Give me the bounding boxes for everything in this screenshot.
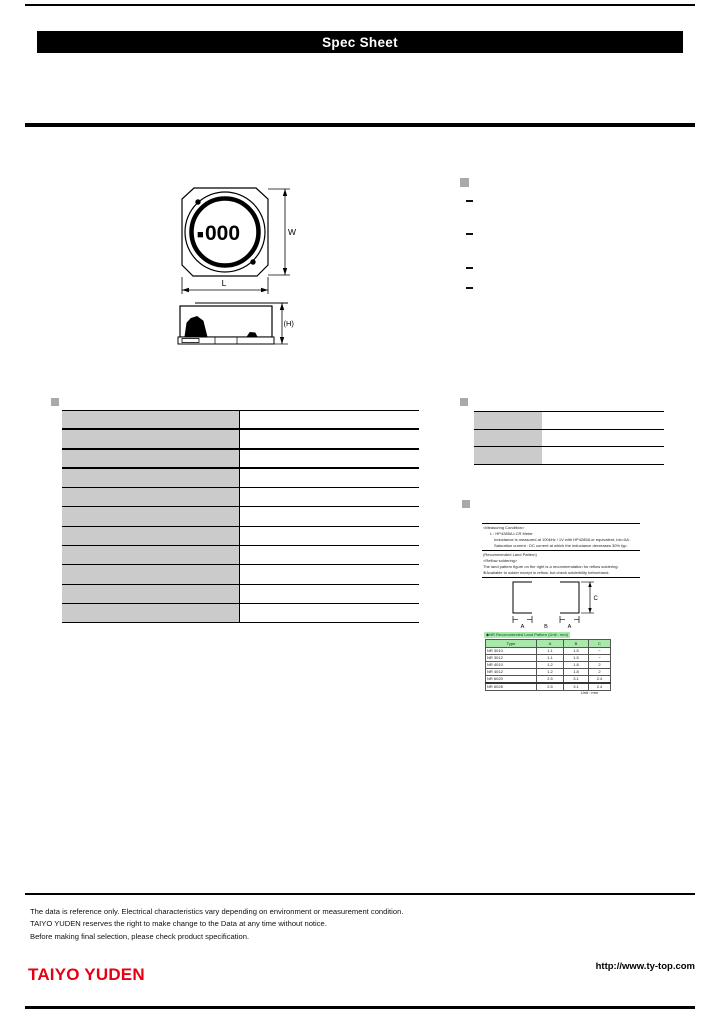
dim-c-label: C xyxy=(594,596,599,602)
spec-sheet-page: Spec Sheet ■ 000 W L xyxy=(0,0,720,1012)
table-row: NR 40101.21.82 xyxy=(486,662,611,669)
page-title: Spec Sheet xyxy=(322,35,398,50)
table-row: NR 40121.21.82 xyxy=(486,669,611,676)
feature-dash-1 xyxy=(466,200,473,202)
table-row xyxy=(62,604,419,623)
dim-a-left-label: A xyxy=(521,624,525,630)
notes-section-bullet xyxy=(462,500,470,508)
bottom-rule xyxy=(25,1006,695,1009)
table-row xyxy=(62,469,419,488)
disclaimer-line: TAIYO YUDEN reserves the right to make c… xyxy=(30,918,403,930)
notes-box: <Measuring Condition> L : HP4285A LCR Me… xyxy=(482,523,640,578)
table-row xyxy=(62,507,419,526)
dim-a-right-label: A xyxy=(568,624,572,630)
table-row: NR 60202.53.12.4 xyxy=(486,676,611,684)
spec-table xyxy=(62,410,419,623)
dim-b-label: B xyxy=(544,624,548,630)
title-bar: Spec Sheet xyxy=(37,31,683,53)
feature-dash-2 xyxy=(466,233,473,235)
table-header-row: Type A B C xyxy=(486,640,611,648)
table-row xyxy=(62,411,419,430)
height-dimension-label: (H) xyxy=(284,319,295,328)
marking-digits: 000 xyxy=(205,222,240,245)
table-row xyxy=(62,546,419,565)
table-row: NR 30121.11.5− xyxy=(486,655,611,662)
table-row xyxy=(474,447,664,465)
taiyo-yuden-logo: TAIYO YUDEN xyxy=(28,965,145,985)
spec-table-section-bullet xyxy=(51,398,59,406)
unit-note: Unit : mm xyxy=(485,690,598,695)
table-row: NR 30101.11.5− xyxy=(486,648,611,655)
top-rule xyxy=(25,4,695,6)
disclaimer-line: The data is reference only. Electrical c… xyxy=(30,906,403,918)
land-pattern-figure-icon: C A B A xyxy=(497,578,615,636)
table-row xyxy=(62,565,419,584)
table-row xyxy=(62,488,419,507)
table-row xyxy=(62,527,419,546)
company-url-link[interactable]: http://www.ty-top.com xyxy=(596,961,695,972)
table-row xyxy=(62,585,419,604)
info-table xyxy=(474,411,664,465)
header-divider-rule xyxy=(25,123,695,127)
footer-rule xyxy=(25,893,695,895)
features-section-bullet xyxy=(460,178,469,187)
soldering-note: (Recommended Land Pattern) <Reflow solde… xyxy=(482,551,640,578)
info-table-section-bullet xyxy=(460,398,468,406)
land-pattern-table: Type A B C NR 30101.11.5− NR 30121.11.5−… xyxy=(485,639,611,691)
disclaimer: The data is reference only. Electrical c… xyxy=(30,906,403,943)
length-dimension-label: L xyxy=(222,278,227,288)
feature-dash-4 xyxy=(466,287,473,289)
disclaimer-line: Before making final selection, please ch… xyxy=(30,931,403,943)
table-row xyxy=(474,430,664,448)
land-pattern-caption: ◆NR Recommended Land Pattern (Unit : mm) xyxy=(484,632,570,638)
table-row xyxy=(62,430,419,449)
marking-square: ■ xyxy=(197,229,204,241)
measuring-condition-note: <Measuring Condition> L : HP4285A LCR Me… xyxy=(482,524,640,551)
table-row xyxy=(62,450,419,469)
table-row xyxy=(474,412,664,430)
width-dimension-label: W xyxy=(288,227,296,237)
component-dimension-drawing-icon: ■ 000 W L (H) xyxy=(168,182,300,348)
feature-dash-3 xyxy=(466,267,473,269)
